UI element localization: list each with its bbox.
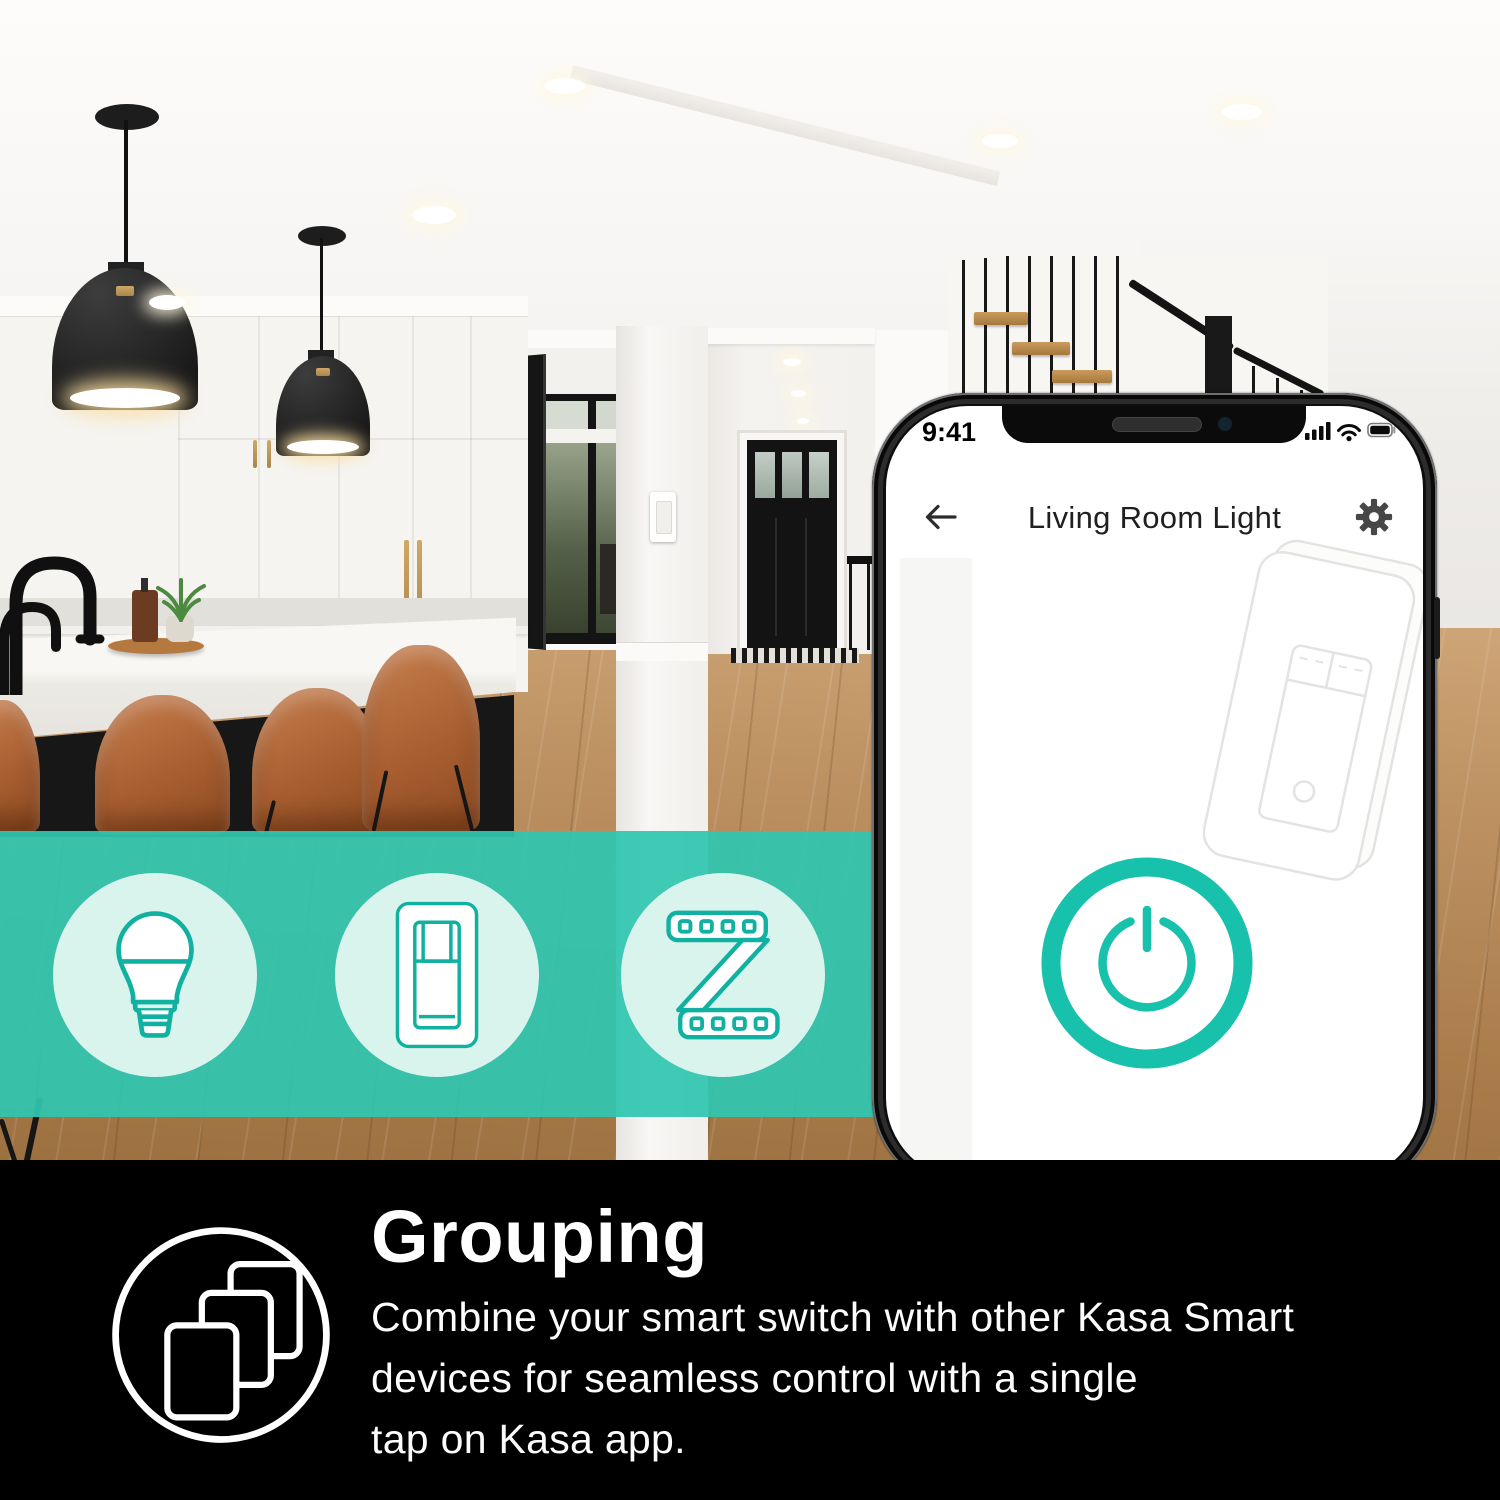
- feature-description-line: devices for seamless control with a sing…: [371, 1355, 1138, 1402]
- band-icon-circle: [53, 873, 257, 1077]
- recessed-light: [791, 390, 806, 397]
- power-button[interactable]: [1027, 843, 1267, 1083]
- front-camera-icon: [1218, 417, 1232, 431]
- feature-heading: Grouping: [371, 1194, 708, 1279]
- stair-step: [974, 312, 1028, 325]
- smart-bulb-icon: [89, 900, 221, 1050]
- recessed-light: [783, 358, 801, 366]
- feature-description-line: tap on Kasa app.: [371, 1416, 686, 1463]
- phone-screen: 9:41 Living: [886, 406, 1423, 1180]
- pendant-lamp-small: [270, 224, 380, 460]
- band-icon-circle: [335, 873, 539, 1077]
- phone-notch: [1002, 406, 1306, 443]
- smartphone-mockup: 9:41 Living: [872, 393, 1437, 1193]
- stair-baluster: [962, 260, 965, 402]
- hallway-soffit: [703, 328, 875, 344]
- marketing-image: 9:41 Living: [0, 0, 1500, 1500]
- recessed-light: [412, 206, 456, 224]
- stair-step: [1052, 370, 1112, 383]
- band-icon-circle: [621, 873, 825, 1077]
- grouping-stack-icon: [105, 1220, 337, 1450]
- speaker-grille-icon: [1112, 417, 1202, 432]
- page-title: Living Room Light: [886, 500, 1423, 536]
- cabinet-handle: [253, 440, 257, 468]
- door-window-pane: [755, 452, 775, 498]
- feature-section: Grouping Combine your smart switch with …: [0, 1160, 1500, 1500]
- stair-newel-post: [1205, 316, 1232, 402]
- settings-button[interactable]: [1355, 498, 1393, 536]
- recessed-light: [982, 134, 1018, 148]
- lamp-shade: [276, 356, 370, 456]
- recessed-light: [797, 418, 809, 424]
- lamp-glow: [70, 388, 181, 408]
- lamp-shade: [52, 268, 198, 410]
- recessed-light: [1222, 104, 1262, 120]
- stair-baluster: [1116, 256, 1119, 402]
- door-panel-seam: [775, 518, 777, 636]
- column-baseboard: [616, 642, 708, 661]
- status-time: 9:41: [922, 417, 976, 448]
- illustration-wall-panel: [900, 558, 972, 1180]
- kitchen-faucet: [0, 545, 120, 695]
- stair-baluster: [1028, 256, 1031, 402]
- front-door: [747, 440, 837, 648]
- phone-side-button: [1434, 597, 1440, 659]
- door-panel-seam: [805, 518, 807, 636]
- stair-step: [1012, 342, 1070, 355]
- led-strip-icon: [653, 899, 793, 1051]
- entry-rug: [731, 648, 859, 663]
- feature-description-line: Combine your smart switch with other Kas…: [371, 1294, 1294, 1341]
- console-table-leg: [867, 564, 870, 650]
- door-window-pane: [809, 452, 829, 498]
- lamp-cord: [320, 238, 323, 358]
- console-table: [847, 556, 873, 564]
- lamp-brass-detail: [316, 368, 330, 376]
- smart-switch-icon: [394, 900, 480, 1050]
- signal-wifi-battery-icons: [1305, 419, 1397, 443]
- recessed-light: [149, 295, 185, 310]
- window-transom-glass: [545, 401, 588, 429]
- console-table-leg: [849, 564, 852, 650]
- door-window-pane: [782, 452, 802, 498]
- window-glass: [545, 443, 588, 633]
- lamp-brass-detail: [116, 286, 134, 296]
- recessed-light: [545, 78, 585, 94]
- pendant-lamp-large: [40, 100, 210, 420]
- lamp-cord: [124, 120, 128, 272]
- switch-rocker: [656, 501, 672, 534]
- plant-icon: [152, 576, 210, 622]
- stair-baluster: [1006, 256, 1009, 402]
- staircase: [948, 256, 1328, 402]
- bottle-pump: [141, 578, 148, 592]
- lamp-glow: [287, 440, 358, 454]
- stair-baluster: [984, 258, 987, 402]
- wall-light-switch: [650, 492, 676, 542]
- hallway: [703, 328, 875, 654]
